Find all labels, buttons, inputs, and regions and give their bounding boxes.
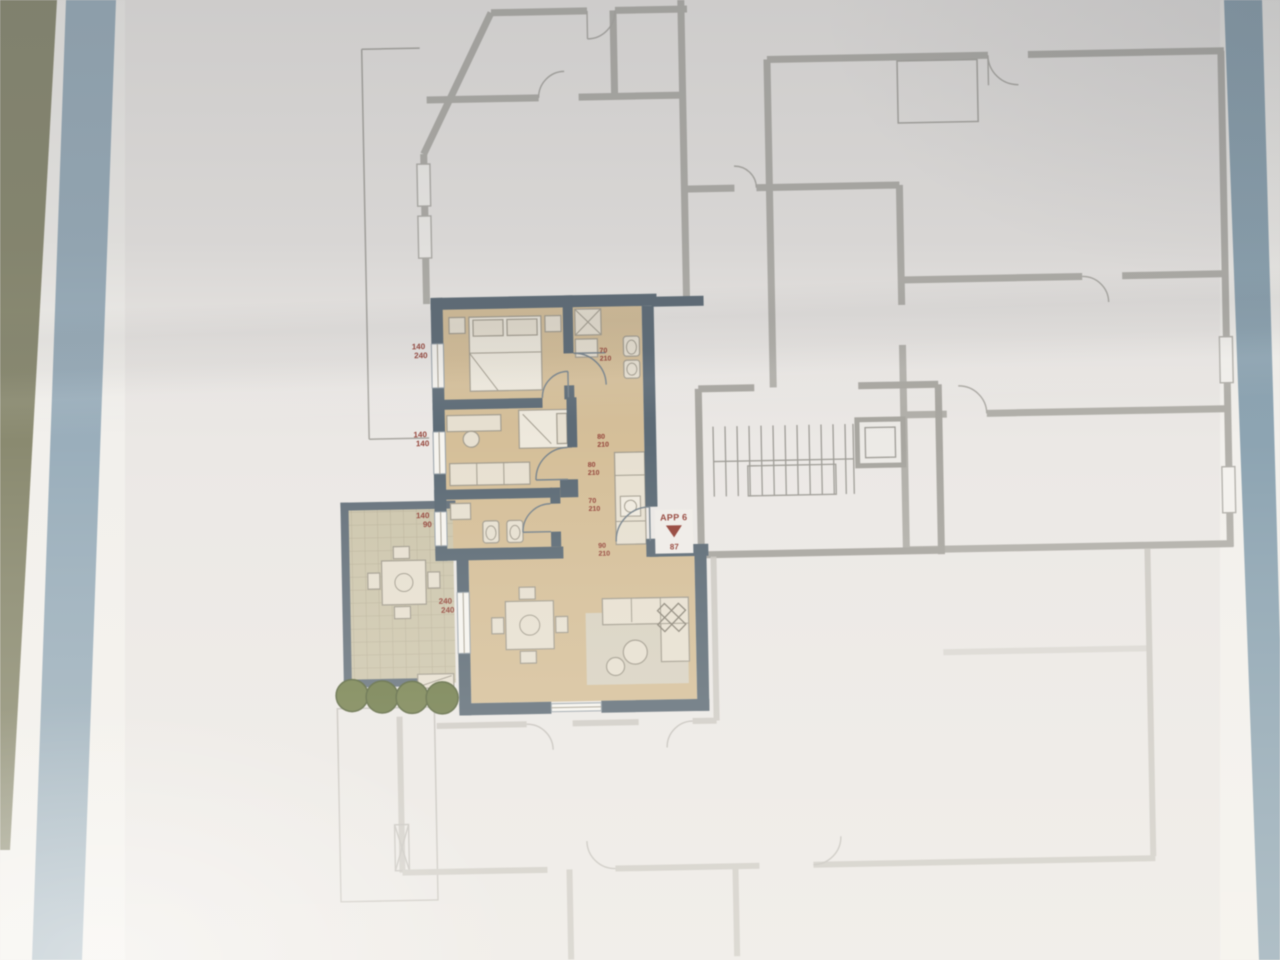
terrace-chair (394, 606, 410, 618)
apartment-area-label: 87 (670, 542, 680, 551)
dining-chair (520, 651, 536, 663)
coffee-table (606, 657, 624, 675)
pillow (557, 413, 568, 443)
entry-label: APP 6 87 (655, 509, 694, 554)
framed-floor-plan-photo: APP 6 87 140 240 140 140 140 90 240 240 (0, 0, 1280, 960)
window (1222, 467, 1236, 513)
terrace-chair (393, 546, 409, 558)
window-dimension-label: 140 240 (412, 342, 428, 360)
kitchen (614, 452, 646, 545)
elevator (857, 419, 904, 466)
bush (366, 681, 399, 714)
nightstand (545, 315, 561, 331)
pillow (473, 320, 503, 337)
dining-chair (492, 618, 504, 634)
wardrobe (450, 462, 530, 486)
nightstand (449, 317, 465, 333)
bush (426, 682, 459, 715)
apartment-label: APP 6 (660, 512, 688, 523)
coffee-table (623, 640, 647, 664)
chair (463, 431, 479, 447)
toilet (623, 336, 639, 356)
terrace-table (382, 560, 427, 605)
terrace-chair (428, 572, 440, 588)
terrace-chair (368, 573, 380, 589)
bush (396, 681, 429, 714)
desk (447, 415, 501, 432)
window-dimension-label: 140 140 (413, 430, 429, 448)
window (1219, 337, 1233, 383)
washbasin (450, 503, 470, 519)
dining-chair (519, 587, 535, 599)
floor-plan-drawing: APP 6 87 140 240 140 140 140 90 240 240 (0, 0, 1280, 960)
pillow (507, 319, 537, 336)
bush (336, 679, 369, 712)
window (417, 164, 431, 206)
dining-table (505, 601, 554, 650)
window-dimension-label: 240 240 (439, 597, 455, 615)
dining-chair (556, 616, 568, 632)
washbasin (575, 339, 597, 357)
window (418, 216, 432, 258)
